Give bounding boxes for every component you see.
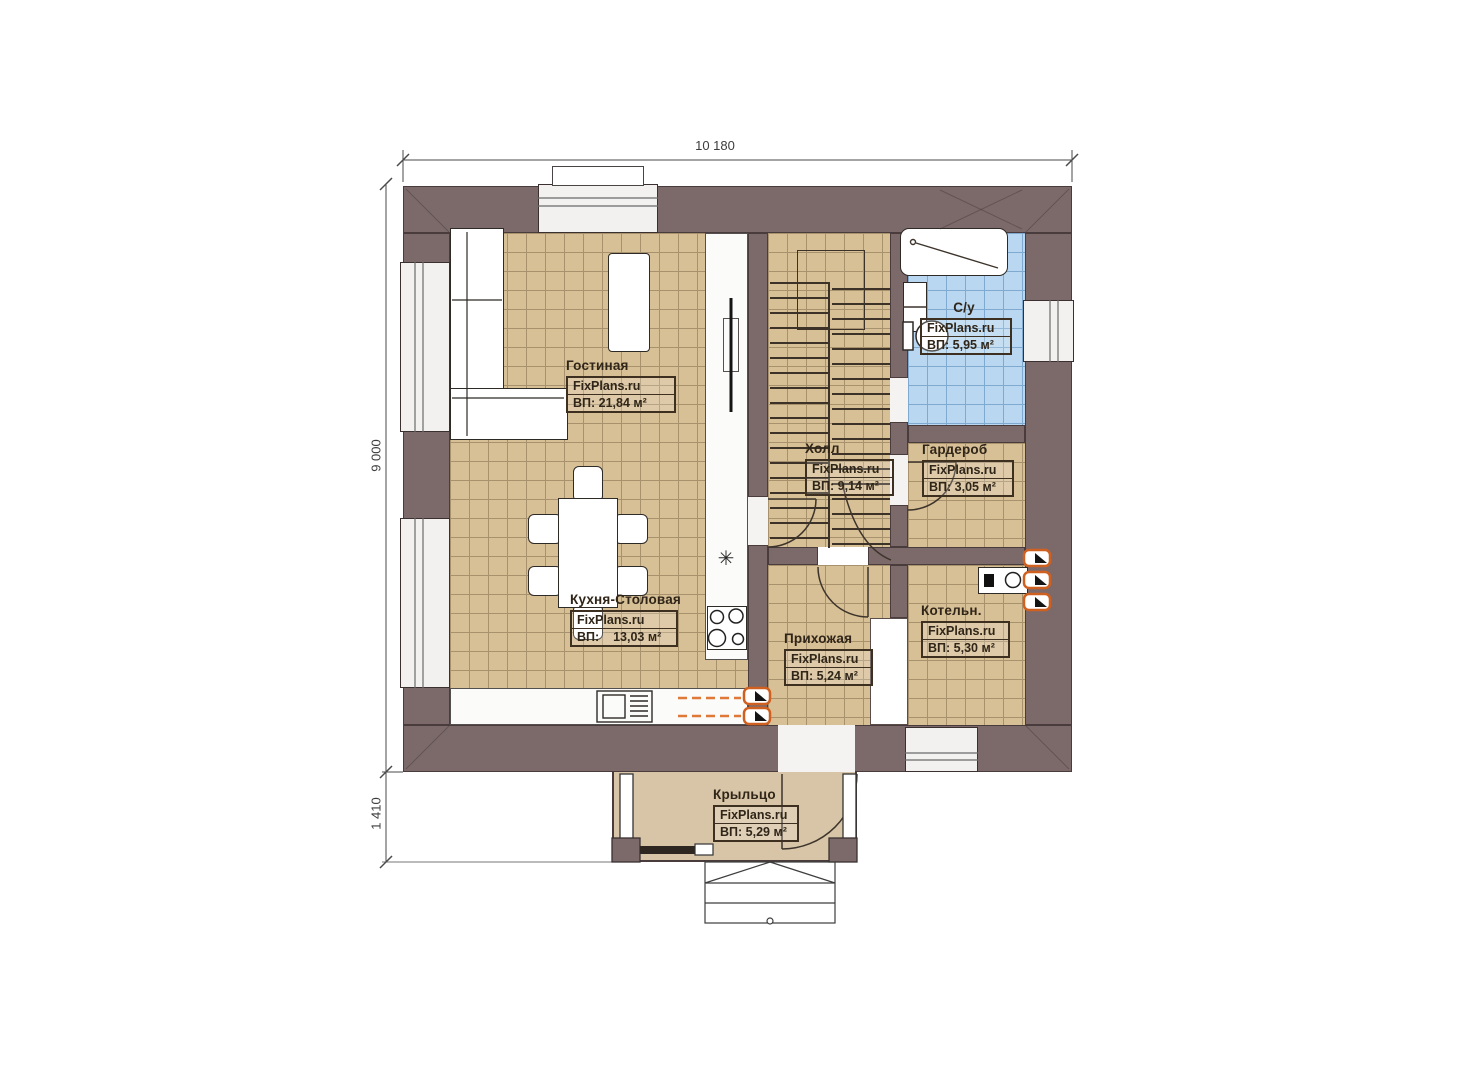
room-box-porch: FixPlans.ru ВП: 5,29 м²: [713, 805, 799, 842]
room-label-living: Гостиная FixPlans.ru ВП: 21,84 м²: [566, 358, 676, 413]
stove: [707, 606, 747, 650]
room-label-hall: Холл FixPlans.ru ВП: 9,14 м²: [805, 441, 894, 496]
room-box-entry: FixPlans.ru ВП: 5,24 м²: [784, 649, 873, 686]
sofa-bottom-arm: [450, 388, 568, 440]
window-left-upper: [400, 262, 450, 432]
dimension-porch: 1 410: [369, 784, 384, 844]
wall-hall-kitchen-upper: [748, 233, 768, 497]
room-area-boiler: ВП: 5,30 м²: [923, 640, 1008, 656]
room-area-wardrobe: ВП: 3,05 м²: [924, 479, 1012, 495]
room-label-boiler: Котельн. FixPlans.ru ВП: 5,30 м²: [921, 603, 1010, 658]
watermark-text: FixPlans.ru: [572, 612, 676, 629]
dining-chair-left-1: [528, 514, 562, 544]
room-box-living: FixPlans.ru ВП: 21,84 м²: [566, 376, 676, 413]
room-name-wardrobe: Гардероб: [922, 442, 1014, 457]
room-area-entry: ВП: 5,24 м²: [786, 668, 871, 684]
room-box-kitchen: FixPlans.ru ВП: 13,03 м²: [570, 610, 678, 647]
window-right-bathroom: [1023, 300, 1074, 362]
watermark-text: FixPlans.ru: [923, 623, 1008, 640]
window-bottom-boiler: [905, 727, 978, 772]
room-name-porch: Крыльцо: [713, 787, 799, 802]
dining-chair-right-1: [614, 514, 648, 544]
floor-plan-canvas: ✳: [0, 0, 1473, 1080]
watermark-text: FixPlans.ru: [568, 378, 674, 395]
window-left-lower: [400, 518, 450, 688]
room-box-wardrobe: FixPlans.ru ВП: 3,05 м²: [922, 460, 1014, 497]
wall-hall-kitchen-lower: [748, 545, 768, 725]
wall-hall-entry-b: [868, 547, 1025, 565]
watermark-text: FixPlans.ru: [715, 807, 797, 824]
tv-bracket: [723, 318, 739, 372]
room-area-living: ВП: 21,84 м²: [568, 395, 674, 411]
room-name-kitchen: Кухня-Столовая: [570, 592, 681, 607]
coffee-table: [608, 253, 650, 352]
wall-wardrobe-hall: [890, 505, 908, 547]
dining-chair-top: [573, 466, 603, 502]
door-gap-front: [778, 725, 855, 772]
door-gap-kitchen-hall: [748, 497, 768, 545]
kitchen-counter-bottom: [450, 688, 748, 725]
room-name-hall: Холл: [805, 441, 894, 456]
wall-top: [403, 186, 1072, 233]
room-area-hall: ВП: 9,14 м²: [807, 478, 892, 494]
dimension-top: 10 180: [660, 138, 770, 153]
boiler-unit: [978, 567, 1028, 594]
dimension-left: 9 000: [369, 426, 384, 486]
room-label-bathroom: С/у FixPlans.ru ВП: 5,95 м²: [920, 300, 1008, 355]
watermark-text: FixPlans.ru: [807, 461, 892, 478]
room-label-porch: Крыльцо FixPlans.ru ВП: 5,29 м²: [713, 787, 799, 842]
stair-landing: [797, 250, 865, 330]
room-name-boiler: Котельн.: [921, 603, 1010, 618]
room-box-boiler: FixPlans.ru ВП: 5,30 м²: [921, 621, 1010, 658]
room-box-bathroom: FixPlans.ru ВП: 5,95 м²: [920, 318, 1012, 355]
wall-entry-boiler: [890, 565, 908, 618]
window-top-outer-frame: [552, 166, 644, 186]
room-area-bathroom: ВП: 5,95 м²: [922, 337, 1010, 353]
room-area-porch: ВП: 5,29 м²: [715, 824, 797, 840]
watermark-text: FixPlans.ru: [922, 320, 1010, 337]
watermark-text: FixPlans.ru: [786, 651, 871, 668]
wall-bath-wardrobe: [908, 425, 1025, 443]
room-name-living: Гостиная: [566, 358, 676, 373]
entrance-steps: [705, 862, 835, 924]
room-label-entry: Прихожая FixPlans.ru ВП: 5,24 м²: [784, 631, 873, 686]
room-label-wardrobe: Гардероб FixPlans.ru ВП: 3,05 м²: [922, 442, 1014, 497]
bathtub: [900, 228, 1008, 276]
room-label-kitchen: Кухня-Столовая FixPlans.ru ВП: 13,03 м²: [570, 592, 681, 647]
kitchen-sink-icon: ✳: [710, 546, 742, 572]
window-top: [538, 184, 658, 233]
room-area-kitchen: ВП: 13,03 м²: [572, 629, 676, 645]
room-name-entry: Прихожая: [784, 631, 873, 646]
dining-chair-left-2: [528, 566, 562, 596]
tv-partition: [705, 233, 748, 660]
room-box-hall: FixPlans.ru ВП: 9,14 м²: [805, 459, 894, 496]
room-name-bathroom: С/у: [920, 300, 1008, 315]
door-entry-boiler: [870, 618, 908, 725]
watermark-text: FixPlans.ru: [924, 462, 1012, 479]
door-gap-bathroom: [890, 378, 908, 422]
